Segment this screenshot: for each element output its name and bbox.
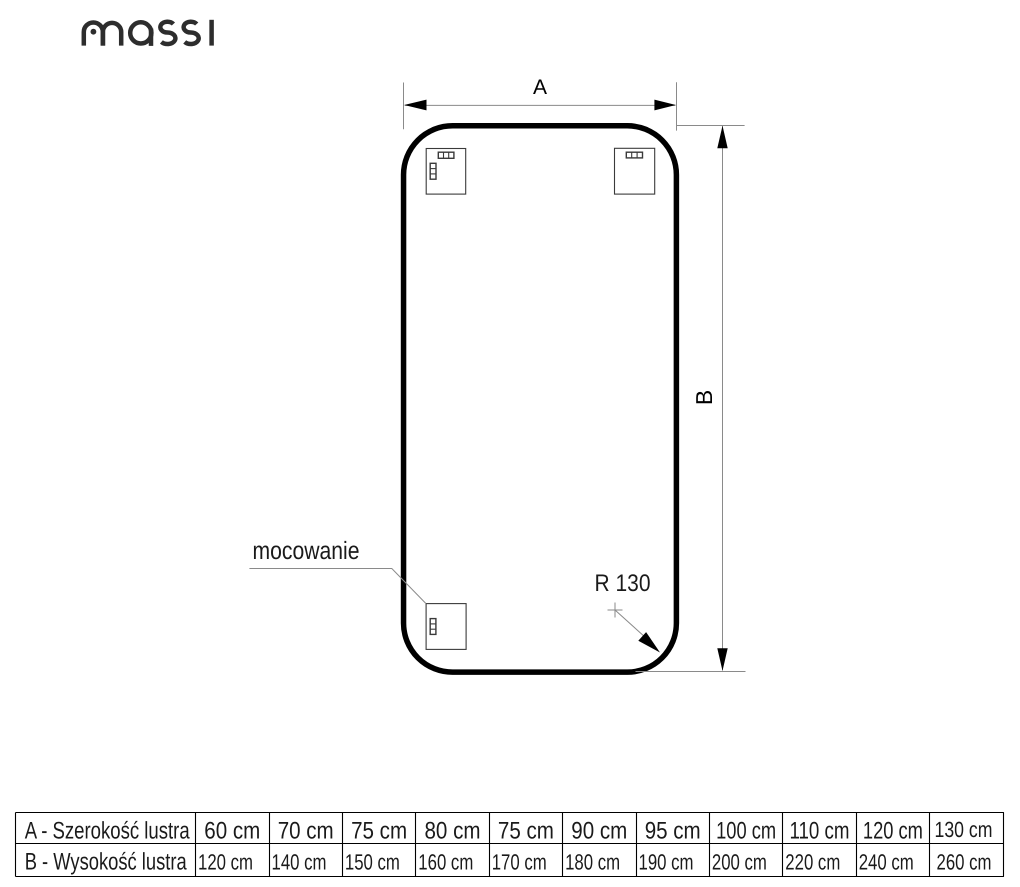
svg-text:80 cm: 80 cm	[425, 818, 481, 845]
svg-text:180 cm: 180 cm	[565, 849, 620, 874]
svg-text:240 cm: 240 cm	[859, 849, 914, 874]
svg-text:95 cm: 95 cm	[645, 818, 701, 845]
svg-text:200 cm: 200 cm	[712, 849, 767, 874]
svg-text:100 cm: 100 cm	[716, 818, 776, 845]
svg-text:150 cm: 150 cm	[345, 849, 400, 874]
svg-text:220 cm: 220 cm	[785, 849, 840, 874]
svg-text:mocowanie: mocowanie	[253, 537, 360, 565]
svg-text:260 cm: 260 cm	[937, 849, 992, 874]
svg-text:B - Wysokość lustra: B - Wysokość lustra	[25, 848, 187, 875]
svg-text:75 cm: 75 cm	[351, 818, 407, 845]
svg-text:120 cm: 120 cm	[198, 849, 253, 874]
svg-text:70 cm: 70 cm	[278, 818, 334, 845]
svg-text:75 cm: 75 cm	[498, 818, 554, 845]
svg-text:B: B	[691, 390, 717, 405]
svg-text:140 cm: 140 cm	[272, 849, 327, 874]
svg-text:160 cm: 160 cm	[418, 849, 473, 874]
svg-text:R 130: R 130	[595, 570, 651, 597]
svg-text:110 cm: 110 cm	[790, 818, 850, 845]
svg-text:A: A	[533, 76, 547, 99]
svg-text:120 cm: 120 cm	[863, 818, 923, 845]
svg-text:90 cm: 90 cm	[571, 818, 627, 845]
svg-text:60 cm: 60 cm	[204, 818, 260, 845]
svg-text:A - Szerokość lustra: A - Szerokość lustra	[25, 818, 190, 845]
svg-text:170 cm: 170 cm	[492, 849, 547, 874]
svg-text:190 cm: 190 cm	[639, 849, 694, 874]
svg-text:130 cm: 130 cm	[935, 817, 993, 842]
